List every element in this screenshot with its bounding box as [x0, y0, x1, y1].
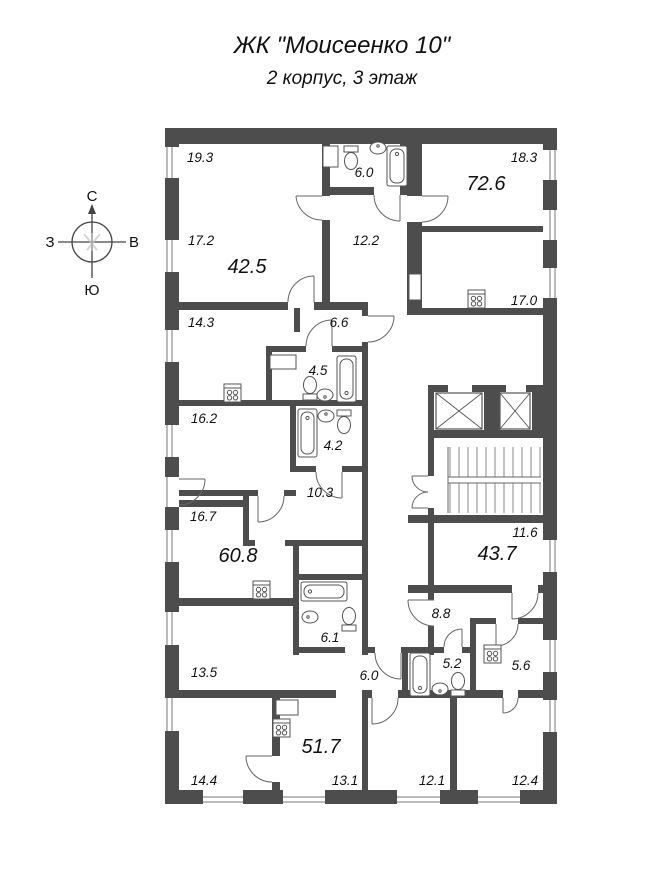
apartment-label-72-6: 72.6 [467, 173, 507, 195]
room-label-6-1: 6.1 [321, 630, 340, 645]
room-label-16-7: 16.7 [190, 509, 217, 524]
walls [165, 128, 557, 804]
room-label-14-3: 14.3 [188, 315, 215, 330]
floor-plan: ЖК "Моисеенко 10" 2 корпус, 3 этаж С Ю З… [0, 0, 664, 880]
room-label-5-6: 5.6 [512, 658, 531, 673]
page-title: ЖК "Моисеенко 10" [233, 32, 452, 59]
room-label-12-2: 12.2 [353, 233, 380, 248]
room-label-17-0: 17.0 [511, 293, 538, 308]
room-label-10-3: 10.3 [307, 485, 334, 500]
room-label-19-3: 19.3 [187, 150, 214, 165]
room-label-14-4: 14.4 [191, 773, 217, 788]
apartment-label-43-7: 43.7 [478, 543, 518, 565]
apartment-label-42-5: 42.5 [228, 256, 268, 278]
elevator-icon [436, 393, 530, 429]
room-label-4-5: 4.5 [309, 363, 328, 378]
room-label-4-2: 4.2 [324, 438, 343, 453]
room-label-5-2: 5.2 [443, 656, 462, 671]
apartment-label-51-7: 51.7 [302, 736, 342, 758]
stairs-icon [448, 447, 541, 513]
room-label-6-0-bottom: 6.0 [360, 668, 379, 683]
room-label-12-4: 12.4 [512, 773, 538, 788]
room-label-8-8: 8.8 [432, 606, 451, 621]
room-label-11-6: 11.6 [512, 525, 538, 540]
room-label-12-1: 12.1 [419, 773, 445, 788]
room-label-13-1: 13.1 [332, 773, 358, 788]
compass-west-label: З [45, 234, 54, 251]
room-label-16-2: 16.2 [191, 411, 218, 426]
compass-rose-icon [58, 204, 126, 278]
floor-plan-page: ЖК "Моисеенко 10" 2 корпус, 3 этаж С Ю З… [0, 0, 664, 880]
room-label-17-2: 17.2 [188, 233, 215, 248]
compass-east-label: В [129, 234, 139, 251]
page-subtitle: 2 корпус, 3 этаж [266, 68, 418, 89]
room-label-6-6: 6.6 [330, 315, 349, 330]
room-label-6-0-top: 6.0 [355, 165, 374, 180]
room-label-18-3: 18.3 [511, 150, 538, 165]
compass-north-label: С [87, 188, 98, 205]
compass-south-label: Ю [84, 282, 99, 299]
apartment-label-60-8: 60.8 [219, 545, 258, 567]
room-label-13-5: 13.5 [191, 665, 218, 680]
